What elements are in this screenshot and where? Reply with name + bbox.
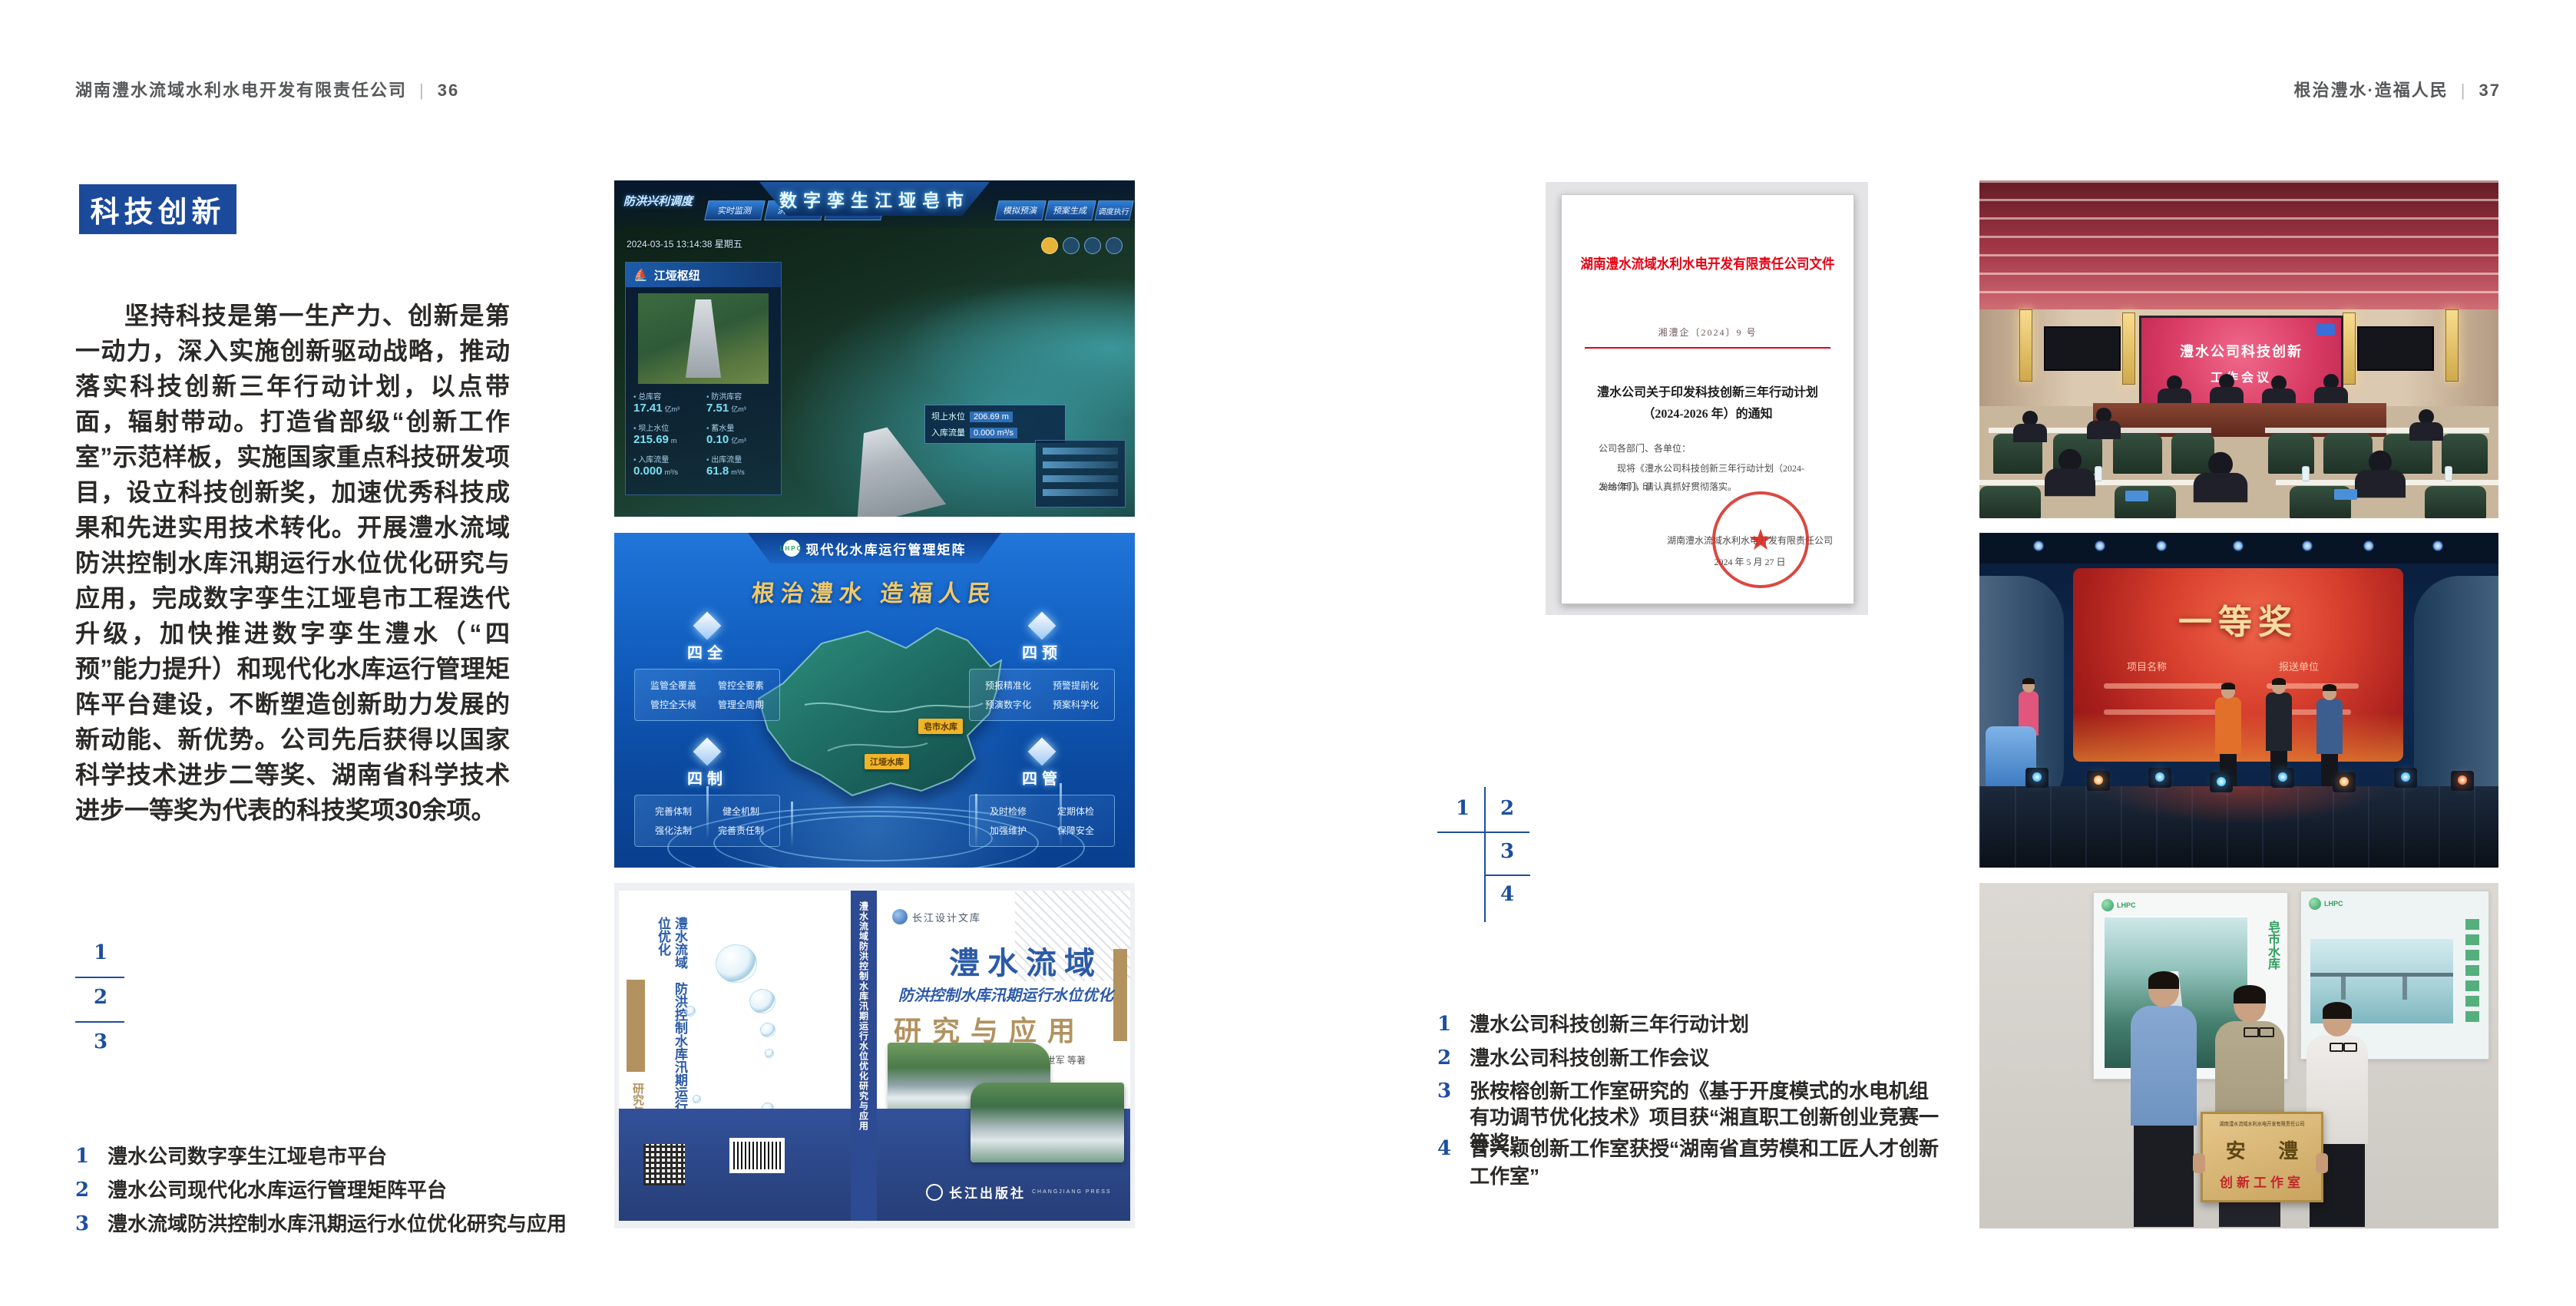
poster-vertical-marks	[2465, 919, 2479, 1027]
glasses-icon	[2343, 1043, 2357, 1052]
caption-number: 4	[1437, 1135, 1470, 1190]
water-bottle	[2302, 466, 2310, 481]
series-logo-icon	[892, 909, 908, 924]
book-back-cover: 澧水流域 防洪控制水库汛期运行水位优化 研究与应用	[619, 891, 851, 1221]
award-row-bar	[2104, 683, 2227, 689]
caption-text: 澧水公司科技创新工作会议	[1470, 1044, 1709, 1072]
desk-row	[2265, 428, 2489, 433]
caption-row: 2澧水公司现代化水库运行管理矩阵平台	[75, 1176, 551, 1204]
dashboard-corner-label: 防洪兴利调度	[623, 193, 693, 209]
dashboard-tab: 调度执行	[1094, 200, 1134, 220]
side-panel-header: ⛵江垭枢纽	[626, 263, 781, 287]
mini-stat-panel	[1035, 440, 1126, 508]
poster-logo: LHPC	[2309, 898, 2343, 910]
map-data-tag: 坝上水位206.69 m 入库流量0.000 m³/s	[924, 405, 1066, 444]
map-label-reservoir: 江垭水库	[865, 754, 909, 769]
dashboard-icon-locate	[1084, 237, 1101, 254]
figure-book-cover: 澧水流域 防洪控制水库汛期运行水位优化 研究与应用 澧水流域防洪控制水库汛期运行…	[614, 883, 1135, 1228]
right-page-header: 根治澧水·造福人民|37	[2293, 77, 2501, 101]
stage-light	[2087, 771, 2110, 791]
stats-grid: 总库容17.41亿m³ 防洪库容7.51亿m³ 坝上水位215.69m 蓄水量0…	[633, 390, 775, 478]
caption-number: 1	[75, 1142, 107, 1170]
matrix-title: 现代化水库运行管理矩阵	[806, 539, 967, 558]
figure-index-3: 3	[1500, 840, 1514, 863]
wall-lamp	[2019, 309, 2032, 382]
spotlight-glow	[2432, 541, 2443, 551]
plaque-subtitle: 创新工作室	[2203, 1172, 2321, 1191]
right-header-separator: |	[2461, 81, 2467, 100]
glasses-icon	[2330, 1043, 2343, 1052]
light-pillar	[791, 802, 793, 848]
brochure-spread: 湖南澧水流域水利水电开发有限责任公司|36 根治澧水·造福人民|37 科技创新 …	[0, 0, 2576, 1306]
photo-innovation-studio-plaque: LHPC 皂市水库 LHPC	[1979, 883, 2498, 1228]
poster-logo: LHPC	[2101, 899, 2136, 911]
water-droplet	[716, 944, 757, 983]
book-title-main: 澧水流域	[949, 938, 1103, 983]
dam-thumbnail	[638, 293, 769, 384]
qr-code	[643, 1144, 685, 1185]
glasses-icon	[2259, 1027, 2274, 1037]
index-grid-hline	[1484, 875, 1530, 876]
light-pillar	[706, 786, 709, 840]
side-panel-title: 江垭枢纽	[654, 267, 700, 283]
stage-light	[2271, 768, 2294, 788]
bridge-pier	[2341, 977, 2346, 1000]
audience-person	[2045, 449, 2095, 497]
caption-row: 4曾兴颖创新工作室获授“湖南省直劳模和工匠人才创新工作室”	[1437, 1135, 1944, 1190]
chair	[2425, 486, 2486, 518]
caption-row: 3澧水流域防洪控制水库汛期运行水位优化研究与应用	[75, 1210, 567, 1238]
book-title-sub: 防洪控制水库汛期运行水位优化	[898, 983, 1113, 1005]
cube-icon	[1028, 612, 1057, 640]
hand	[2316, 1153, 2328, 1173]
caption-text: 澧水公司科技创新三年行动计划	[1470, 1010, 1749, 1038]
stage-light	[2451, 771, 2474, 791]
spotlight-glow	[2363, 541, 2374, 551]
light-pillar	[1060, 783, 1062, 848]
plaque-header: 湖南澧水流域水利水电开发有限责任公司	[2210, 1120, 2314, 1128]
star-icon: ★	[1748, 523, 1774, 557]
seated-person	[2262, 375, 2296, 407]
wall-lamp	[2445, 309, 2459, 382]
caption-text: 澧水流域防洪控制水库汛期运行水位优化研究与应用	[107, 1210, 567, 1238]
innovation-studio-plaque: 湖南澧水流域水利水电开发有限责任公司 安 澧 创新工作室	[2201, 1112, 2323, 1202]
figure-matrix-platform: LHPC 现代化水库运行管理矩阵 根治澧水 造福人民 皂市水库 江垭水库 四全 …	[614, 533, 1135, 868]
audience-person	[2409, 409, 2443, 441]
quadrant-panel: 监管全覆盖管控全要素 管控全天候管理全周期	[634, 669, 780, 721]
stat-cell: 入库流量0.000m³/s	[633, 453, 702, 478]
quadrant-panel: 预报精准化预警提前化 预演数字化预案科学化	[969, 669, 1115, 721]
publisher-icon	[926, 1184, 943, 1201]
figure-index-2: 2	[94, 986, 107, 1009]
award-col-header: 项目名称	[2127, 659, 2167, 673]
photo-award-ceremony: 一等奖 项目名称 报送单位	[1979, 533, 2498, 868]
stat-cell: 总库容17.41亿m³	[633, 390, 702, 415]
water-bottle	[2095, 466, 2102, 481]
index-grid-hline	[1437, 832, 1529, 833]
map-label-reservoir: 皂市水库	[918, 719, 963, 734]
light-pillar	[975, 794, 977, 849]
caption-number: 3	[75, 1210, 107, 1238]
index-grid-vline	[1484, 787, 1486, 922]
stat-cell: 坝上水位215.69m	[633, 422, 702, 447]
bridge-deck	[2310, 973, 2453, 977]
glasses-icon	[2244, 1027, 2259, 1037]
quadrant-siquan: 四全 监管全覆盖管控全要素 管控全天候管理全周期	[634, 616, 780, 721]
lhpc-logo-icon: LHPC	[783, 540, 800, 557]
section-title-box: 科技创新	[79, 184, 236, 234]
wall-tv	[2357, 326, 2434, 371]
right-page-number: 37	[2479, 81, 2501, 100]
spotlight-glow	[2233, 541, 2244, 551]
book-spine: 澧水流域防洪控制水库汛期运行水位优化研究与应用	[851, 891, 877, 1221]
publisher-logo: 长江出版社 CHANGJIANG PRESS	[926, 1182, 1112, 1202]
seated-person	[2158, 375, 2191, 407]
lhpc-logo-icon	[2101, 899, 2114, 911]
seated-person	[2314, 374, 2348, 405]
caption-row: 1澧水公司数字孪生江垭皂市平台	[75, 1142, 551, 1170]
bridge-pier	[2402, 977, 2407, 1000]
caption-row: 2澧水公司科技创新工作会议	[1437, 1044, 1944, 1072]
matrix-header: LHPC 现代化水库运行管理矩阵	[748, 533, 1001, 564]
figure-index-1: 1	[1456, 797, 1470, 820]
water-droplet	[760, 1023, 775, 1037]
caption-number: 2	[1437, 1044, 1470, 1072]
dashboard-tab: 实时监测	[704, 200, 766, 220]
lhpc-logo-icon	[2309, 898, 2321, 910]
document-salutation: 公司各部门、各单位：	[1599, 439, 1820, 458]
document-number: 湘澧企〔2024〕9 号	[1562, 326, 1853, 339]
caption-text: 澧水公司数字孪生江垭皂市平台	[107, 1142, 387, 1170]
stat-cell: 防洪库容7.51亿m³	[706, 390, 775, 415]
quadrant-siyu: 四预 预报精准化预警提前化 预演数字化预案科学化	[969, 616, 1115, 721]
document-red-rule	[1585, 347, 1830, 349]
wall-lamp	[2122, 312, 2135, 385]
dam-photo-2	[971, 1083, 1124, 1162]
figure-official-document: 湖南澧水流域水利水电开发有限责任公司文件 湘澧企〔2024〕9 号 澧水公司关于…	[1546, 182, 1868, 615]
cube-icon	[693, 612, 722, 640]
caption-text: 澧水公司现代化水库运行管理矩阵平台	[107, 1176, 447, 1204]
left-header-company: 湖南澧水流域水利水电开发有限责任公司	[75, 81, 407, 100]
wall-tv	[2044, 326, 2121, 371]
seated-person	[2210, 374, 2244, 405]
plaque-name: 安 澧	[2203, 1136, 2321, 1164]
back-cover-band	[619, 1109, 851, 1221]
dashboard-icon-layers	[1106, 237, 1123, 254]
tissue-box	[2125, 491, 2148, 501]
award-col-header: 报送单位	[2279, 659, 2319, 673]
water-droplet	[685, 1006, 696, 1017]
series-logo: 长江设计文库	[892, 909, 981, 924]
caption-row: 1澧水公司科技创新三年行动计划	[1437, 1010, 1944, 1038]
audience-person	[2355, 451, 2406, 498]
spotlight-glow	[2156, 541, 2167, 551]
audience-person	[2013, 411, 2047, 442]
left-page-number: 36	[438, 81, 459, 100]
body-paragraph: 坚持科技是第一生产力、创新是第一动力，深入实施创新驱动战略，推动落实科技创新三年…	[75, 298, 510, 828]
spotlight-glow	[2033, 541, 2044, 551]
stage-light	[2025, 768, 2049, 788]
hand	[2193, 1153, 2205, 1173]
audience-person	[2087, 408, 2121, 439]
spotlight-glow	[2095, 541, 2105, 551]
document-body-line: 发给你们，请认真抓好贯彻落实。	[1599, 478, 1820, 496]
stage-light	[2210, 772, 2233, 792]
right-header-slogan: 根治澧水·造福人民	[2293, 81, 2448, 100]
dashboard-icon-alert	[1041, 237, 1058, 254]
index-divider	[75, 1021, 124, 1023]
tag-row: 入库流量0.000 m³/s	[931, 426, 1059, 438]
barcode	[729, 1138, 785, 1173]
screen-logo-icon	[2316, 324, 2335, 336]
document-subject: 澧水公司关于印发科技创新三年行动计划 （2024-2026 年）的通知	[1562, 382, 1853, 425]
dashboard-icon-user	[1063, 237, 1080, 254]
screen-title-line1: 澧水公司科技创新	[2141, 341, 2341, 361]
stat-cell: 出库流量61.8m³/s	[706, 453, 775, 478]
cube-icon	[693, 738, 722, 766]
spotlight-glow	[2302, 541, 2313, 551]
figure-index-1: 1	[94, 941, 107, 964]
dashboard-tab: 预案生成	[1044, 200, 1096, 220]
stage-light	[2333, 772, 2356, 792]
water-droplet	[765, 1049, 774, 1058]
stage-light	[2148, 768, 2171, 788]
index-divider	[75, 977, 124, 978]
figure-index-2: 2	[1500, 797, 1514, 820]
figure-digital-twin-dashboard: 防洪兴利调度 实时监测 洪水预报 防汛预案 数字孪生江垭皂市 模拟预演 预案生成…	[614, 180, 1135, 517]
matrix-slogan: 根治澧水 造福人民	[614, 574, 1135, 608]
meeting-ceiling	[1979, 180, 2498, 309]
figure-index-4: 4	[1500, 883, 1514, 906]
book-front-cover: 长江设计文库 澧水流域 防洪控制水库汛期运行水位优化 研究与应用 洪兴骏 沈坤民…	[877, 891, 1130, 1221]
water-droplet	[693, 1095, 701, 1103]
left-header-separator: |	[419, 81, 425, 100]
cube-icon	[1028, 738, 1057, 766]
tissue-box	[2334, 489, 2357, 500]
spine-title: 澧水流域防洪控制水库汛期运行水位优化研究与应用	[858, 901, 871, 1155]
water-droplet	[749, 989, 775, 1013]
man-blue-polo	[2130, 974, 2197, 1227]
sailboat-icon: ⛵	[633, 268, 648, 282]
audience-person	[2194, 452, 2247, 503]
back-cover-vertical-title: 澧水流域 防洪控制水库汛期运行水位优化	[654, 917, 688, 1132]
dashboard-side-panel: ⛵江垭枢纽 总库容17.41亿m³ 防洪库容7.51亿m³ 坝上水位215.69…	[625, 262, 782, 495]
stat-cell: 蓄水量0.10亿m³	[706, 422, 775, 447]
document-paper: 湖南澧水流域水利水电开发有限责任公司文件 湘澧企〔2024〕9 号 澧水公司关于…	[1561, 194, 1854, 604]
caption-text: 曾兴颖创新工作室获授“湖南省直劳模和工匠人才创新工作室”	[1470, 1135, 1944, 1190]
official-seal: ★	[1712, 491, 1809, 588]
tan-bar	[1113, 949, 1127, 1041]
figure-index-3: 3	[94, 1030, 107, 1053]
dashboard-timestamp: 2024-03-15 13:14:38 星期五	[627, 237, 742, 250]
dashboard-tab: 模拟预演	[994, 200, 1047, 220]
photo-innovation-meeting: 澧水公司科技创新 工作会议	[1979, 180, 2498, 518]
left-page-header: 湖南澧水流域水利水电开发有限责任公司|36	[75, 77, 459, 101]
chair	[1979, 486, 2041, 518]
tag-row: 坝上水位206.69 m	[931, 410, 1059, 422]
dam-shape	[686, 299, 721, 378]
caption-number: 2	[75, 1176, 107, 1204]
chair	[2113, 434, 2162, 474]
document-red-title: 湖南澧水流域水利水电开发有限责任公司文件	[1573, 253, 1842, 273]
caption-number: 1	[1437, 1010, 1470, 1038]
tan-block	[627, 980, 645, 1072]
stage-light	[2394, 768, 2417, 788]
dashboard-title: 数字孪生江垭皂市	[759, 182, 990, 216]
water-bottle	[2445, 466, 2452, 481]
